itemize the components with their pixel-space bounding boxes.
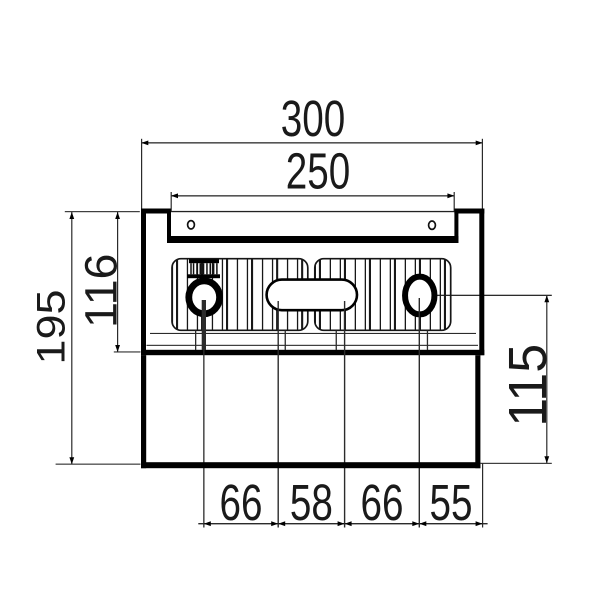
svg-text:66: 66 [361, 474, 404, 531]
svg-text:58: 58 [290, 474, 333, 531]
svg-text:66: 66 [220, 474, 263, 531]
svg-text:55: 55 [430, 474, 473, 531]
svg-text:115: 115 [498, 344, 558, 427]
svg-text:195: 195 [30, 290, 74, 365]
svg-text:116: 116 [76, 253, 127, 328]
svg-text:250: 250 [286, 142, 351, 199]
svg-text:300: 300 [281, 90, 346, 147]
